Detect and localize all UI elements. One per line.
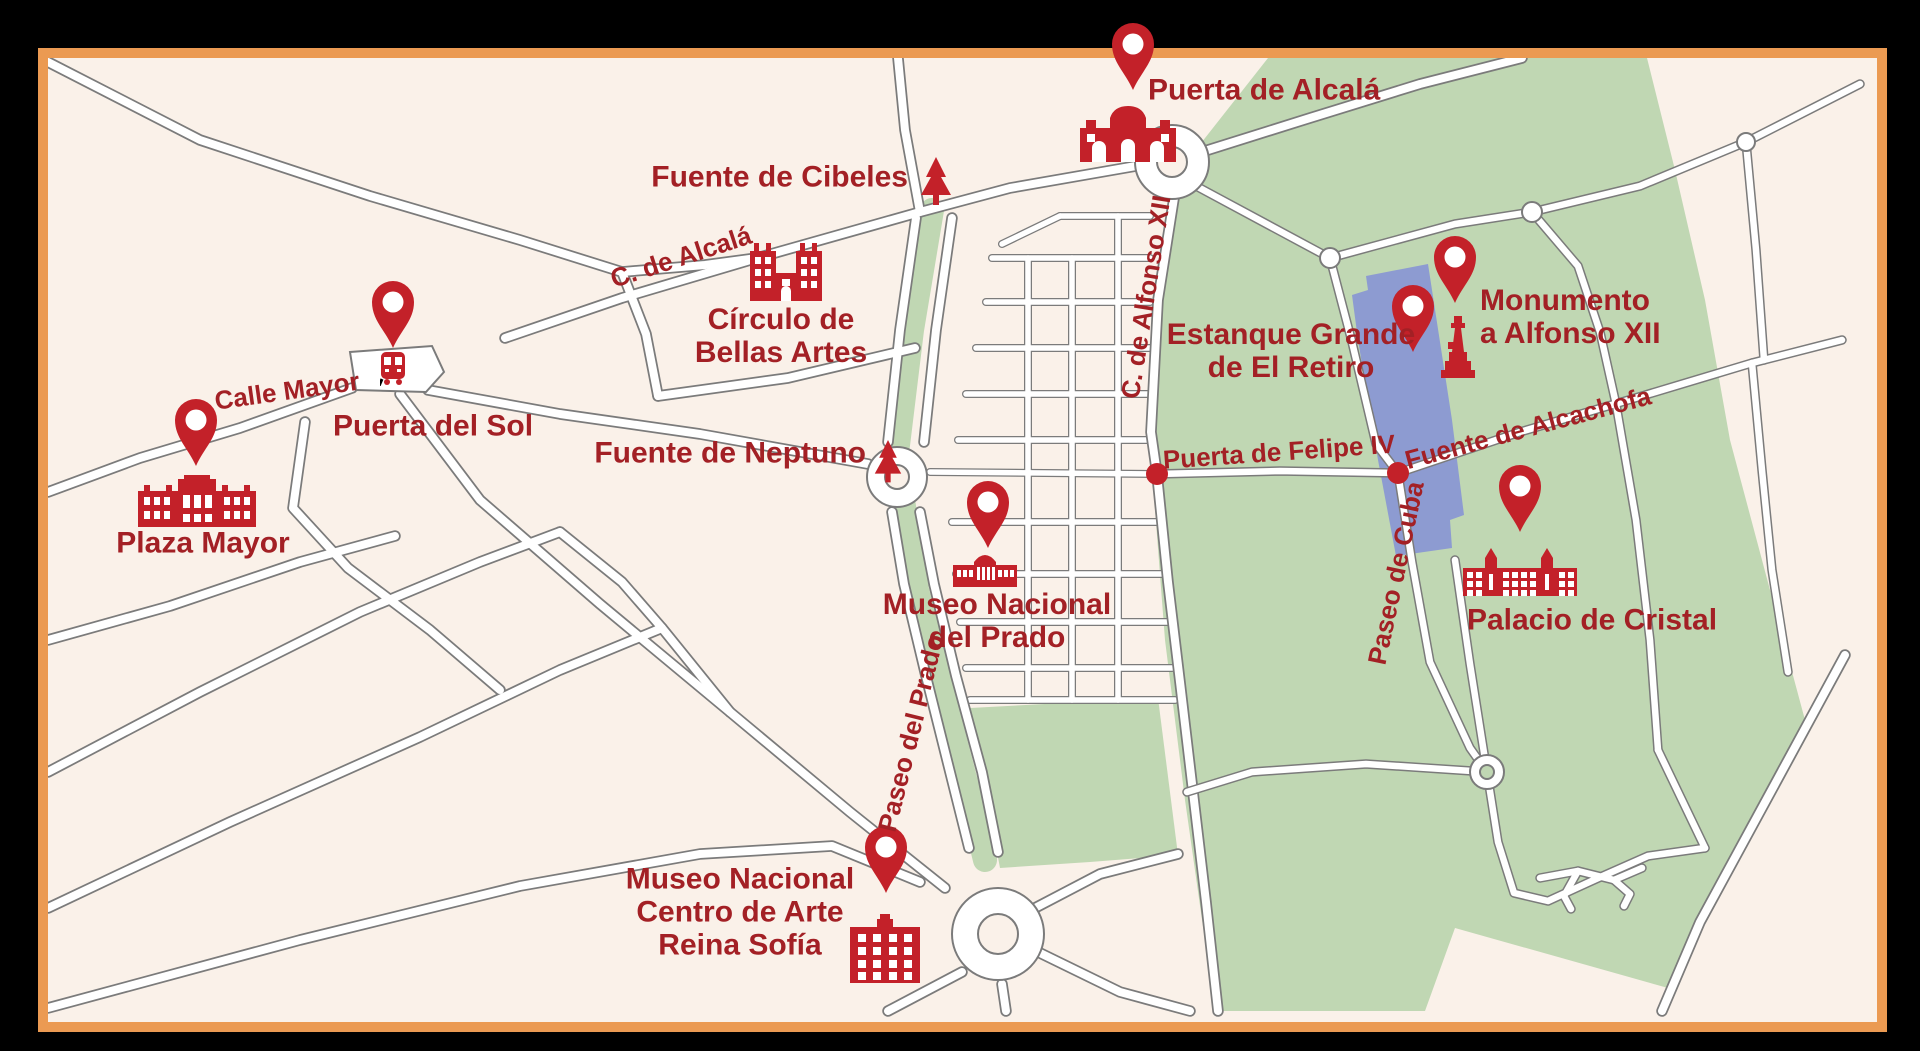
label-puerta-de-alcala: Puerta de Alcalá — [1148, 74, 1380, 107]
map-pin-icon[interactable] — [1432, 235, 1478, 303]
label-estanque-grande: Estanque Grande de El Retiro — [1167, 318, 1415, 384]
monumento-alfonso-xii-icon[interactable] — [1441, 316, 1475, 378]
map-pin-icon[interactable] — [965, 480, 1011, 548]
map-pin-icon[interactable] — [863, 825, 909, 893]
puerta-de-alcala-icon[interactable] — [1080, 104, 1176, 162]
museo-del-prado-icon[interactable] — [953, 553, 1017, 587]
map-content — [48, 58, 1877, 1022]
label-fuente-de-neptuno: Fuente de Neptuno — [594, 437, 866, 470]
madrid-map: Puerta de Alcalá Fuente de Cibeles Círcu… — [0, 0, 1920, 1051]
label-circulo-de-bellas-artes: Círculo de Bellas Artes — [695, 303, 867, 369]
metro-station-icon[interactable] — [380, 352, 406, 386]
reina-sofia-icon[interactable] — [850, 911, 920, 983]
circulo-de-bellas-artes-icon[interactable] — [750, 239, 822, 301]
map-pin-icon[interactable] — [370, 280, 416, 348]
palacio-de-cristal-icon[interactable] — [1463, 548, 1577, 596]
label-reina-sofia: Museo Nacional Centro de Arte Reina Sofí… — [626, 863, 854, 962]
fuente-de-neptuno-icon[interactable] — [873, 438, 903, 488]
label-monumento-alfonso-xii: Monumento a Alfonso XII — [1480, 284, 1661, 350]
label-palacio-de-cristal: Palacio de Cristal — [1467, 604, 1717, 637]
label-puerta-del-sol: Puerta del Sol — [333, 410, 533, 443]
map-pin-icon[interactable] — [173, 398, 219, 466]
plaza-mayor-icon[interactable] — [138, 471, 256, 527]
label-fuente-de-cibeles: Fuente de Cibeles — [651, 161, 908, 194]
fuente-de-cibeles-icon[interactable] — [919, 157, 953, 209]
map-pin-icon[interactable] — [1497, 464, 1543, 532]
label-plaza-mayor: Plaza Mayor — [116, 527, 289, 560]
map-canvas — [0, 0, 1920, 1051]
